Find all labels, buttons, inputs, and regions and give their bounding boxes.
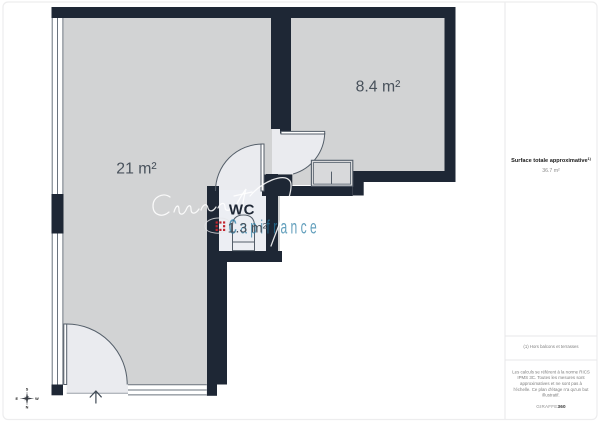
- svg-text:approximatives et ne sont pas: approximatives et ne sont pas à: [520, 381, 583, 386]
- svg-text:(1) Hors balcons et terrasses: (1) Hors balcons et terrasses: [523, 344, 578, 349]
- svg-text:1.3 m²: 1.3 m²: [228, 219, 268, 235]
- svg-text:36.7 m²: 36.7 m²: [542, 168, 560, 174]
- svg-text:W: W: [35, 397, 39, 401]
- svg-text:illustratif.: illustratif.: [542, 393, 559, 398]
- svg-text:N: N: [26, 406, 29, 410]
- svg-text:Surface totale approximative1): Surface totale approximative1): [511, 157, 591, 164]
- svg-text:21 m²: 21 m²: [116, 161, 156, 178]
- svg-text:E: E: [16, 397, 19, 401]
- svg-text:GIRAFFE360: GIRAFFE360: [536, 404, 566, 409]
- svg-text:WC: WC: [229, 202, 255, 219]
- svg-text:l'échelle. Ce plan d'étage n'a: l'échelle. Ce plan d'étage n'a qu'un but: [514, 387, 590, 392]
- svg-text:8.4 m²: 8.4 m²: [356, 78, 401, 95]
- svg-text:S: S: [26, 388, 29, 392]
- svg-text:Les calculs se réfèrent à la n: Les calculs se réfèrent à la norme RICS: [512, 369, 590, 374]
- svg-text:IPMS 3C. Toutes les mesures so: IPMS 3C. Toutes les mesures sont: [517, 375, 585, 380]
